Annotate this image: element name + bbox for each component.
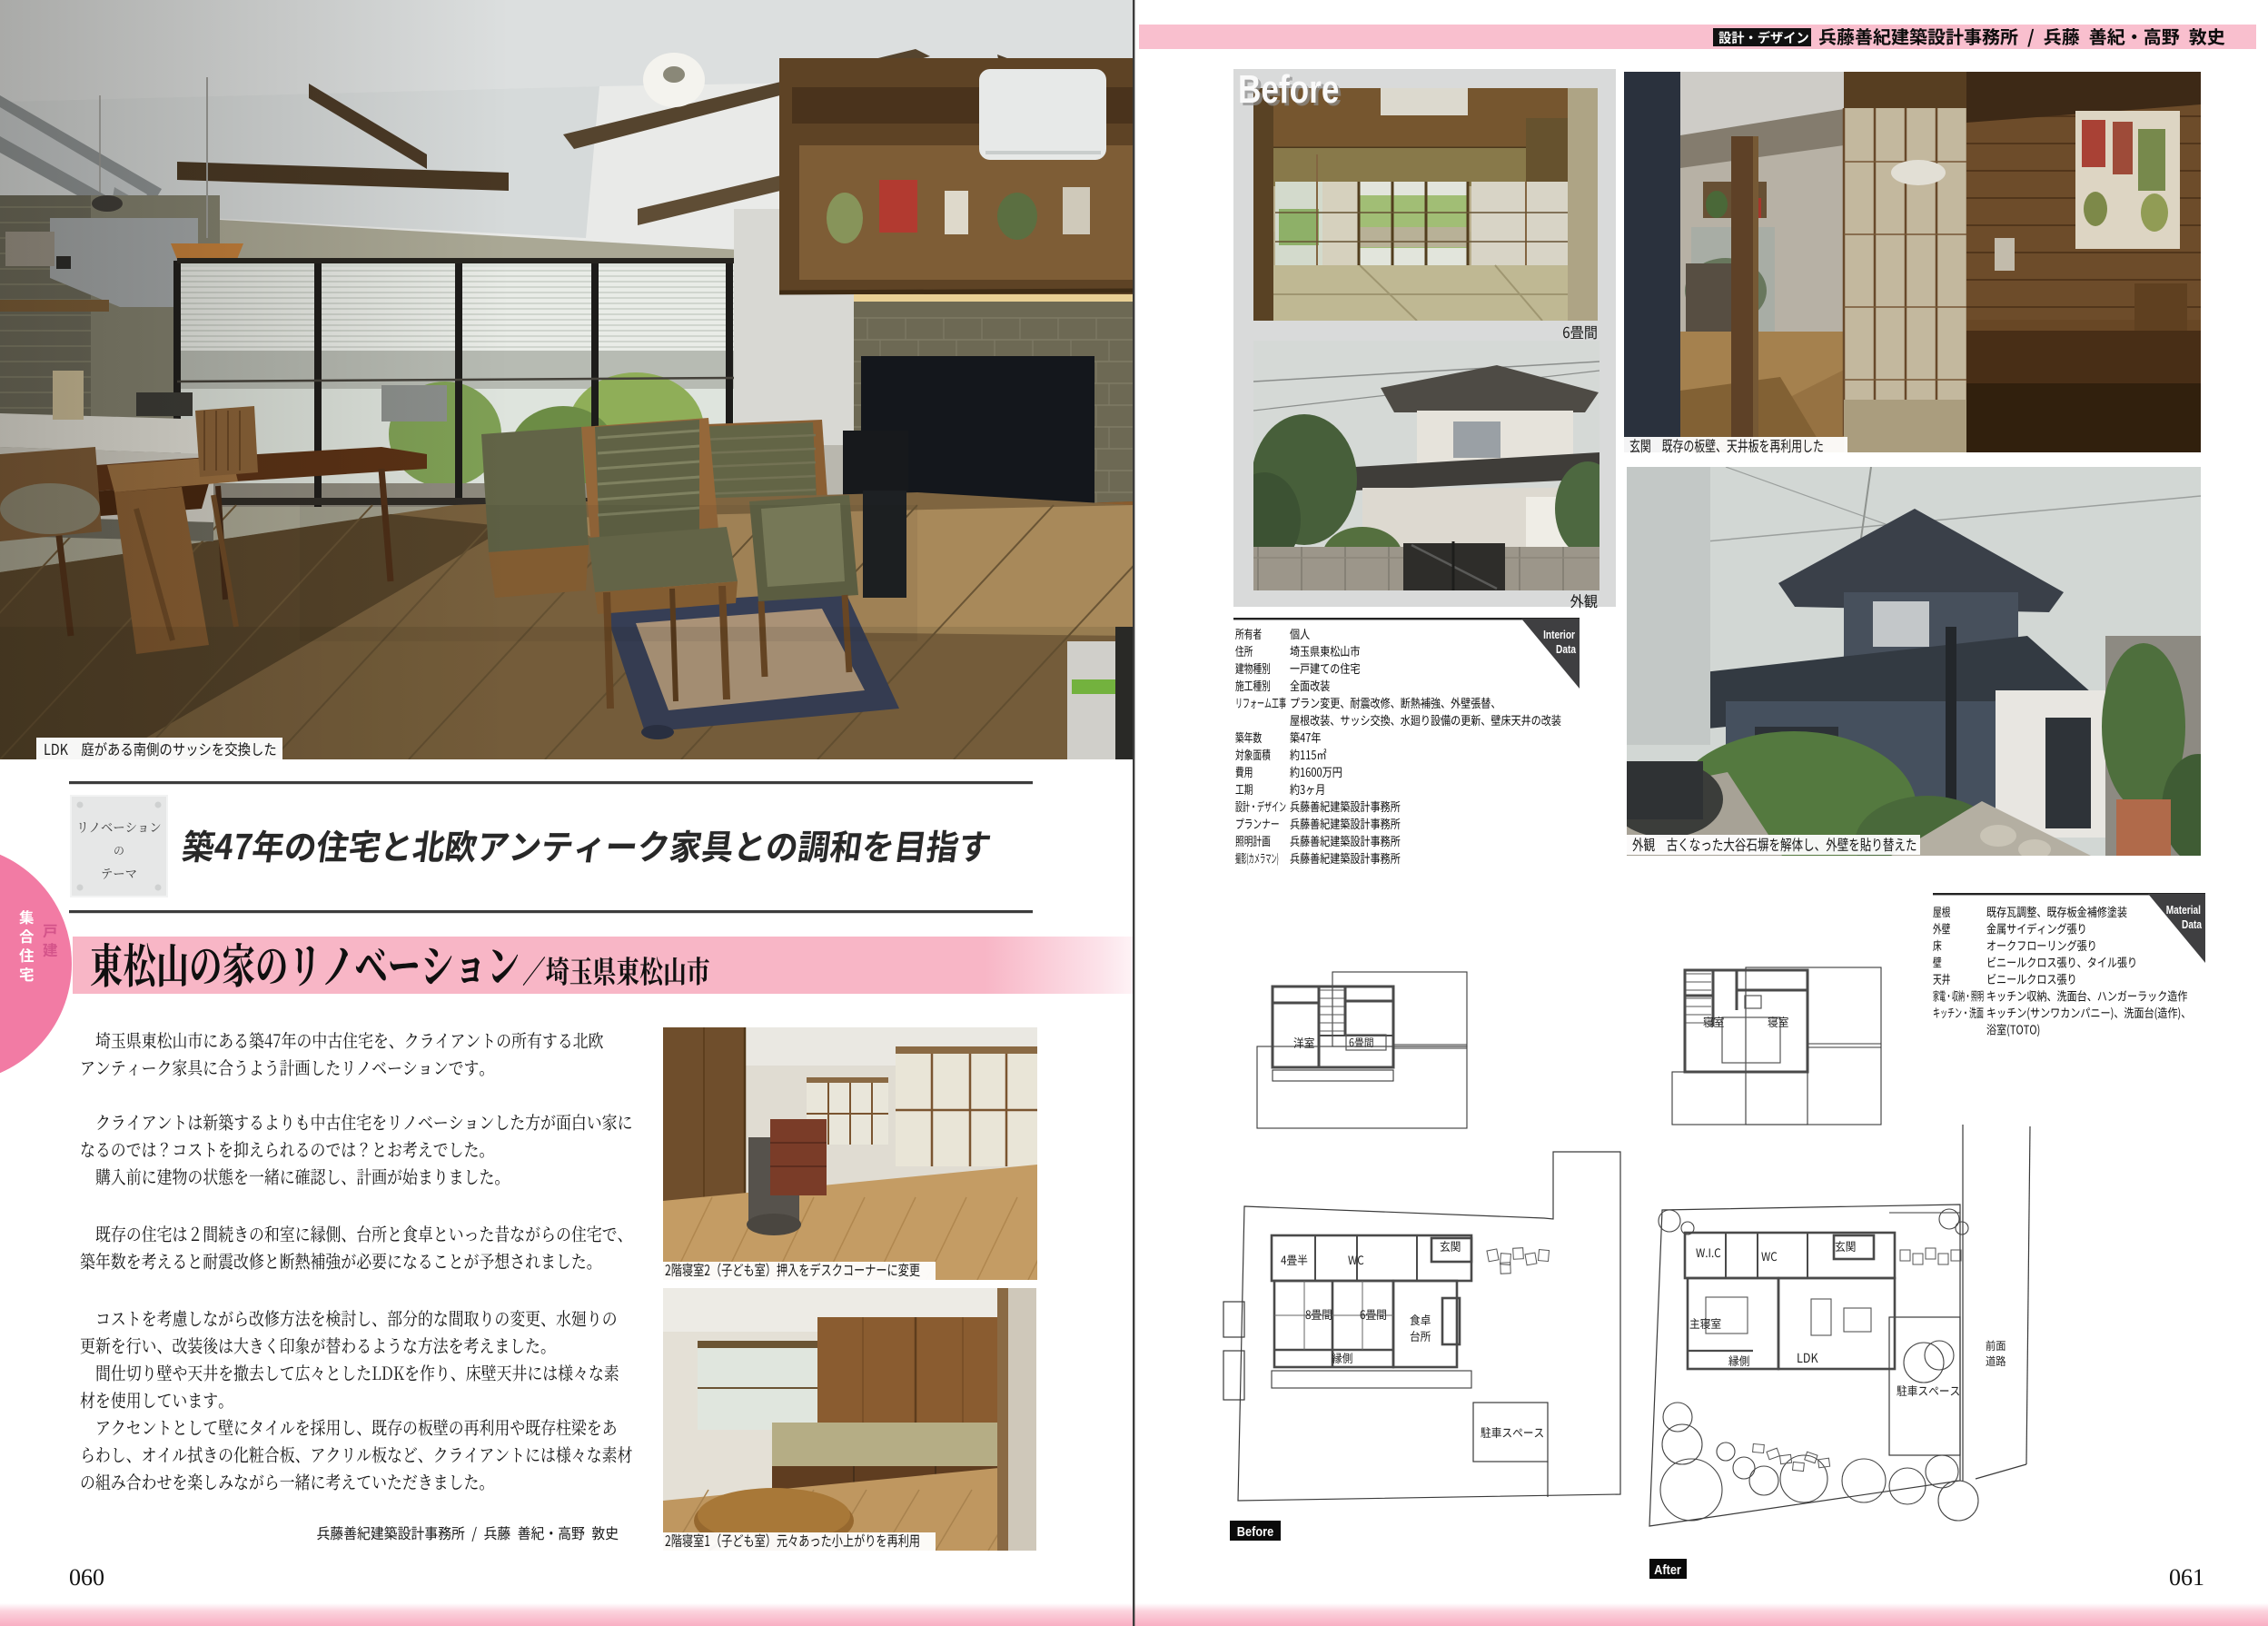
svg-text:060: 060	[69, 1564, 104, 1591]
svg-text:After: After	[1654, 1562, 1681, 1577]
svg-text:Interior: Interior	[1543, 629, 1575, 641]
svg-text:Before: Before	[1238, 67, 1339, 112]
svg-text:Material: Material	[2166, 904, 2201, 917]
svg-text:Data: Data	[1556, 643, 1576, 656]
svg-text:Before: Before	[1237, 1523, 1274, 1539]
svg-text:Data: Data	[2182, 918, 2202, 931]
svg-text:061: 061	[2169, 1564, 2204, 1591]
